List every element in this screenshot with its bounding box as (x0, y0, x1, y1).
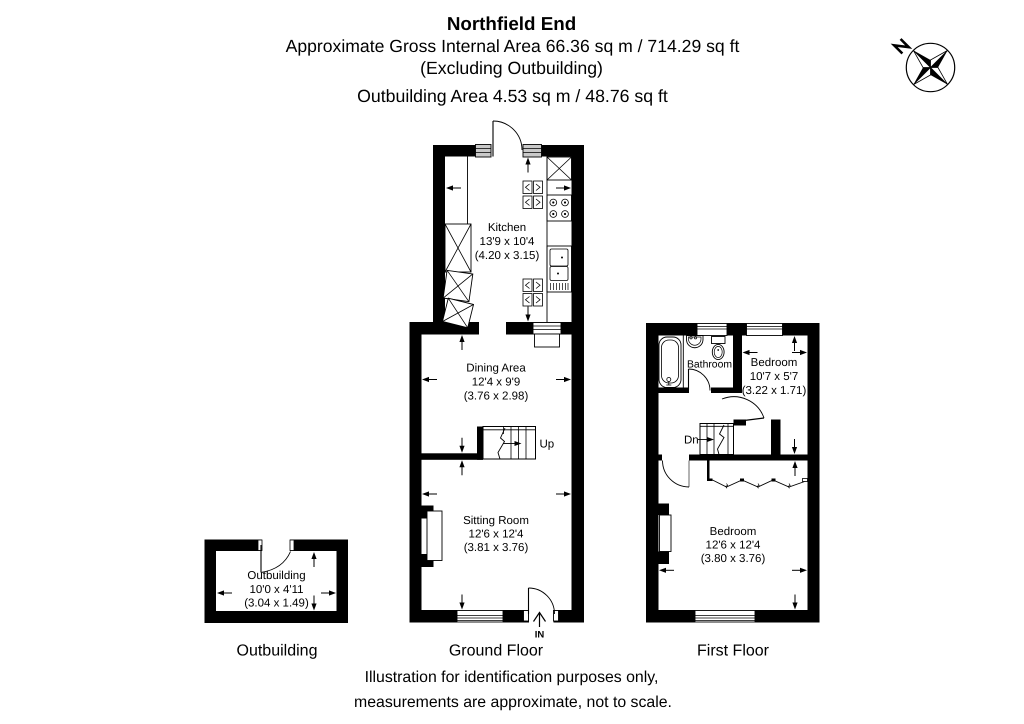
svg-text:Approximate Gross Internal Are: Approximate Gross Internal Area 66.36 sq… (286, 36, 740, 56)
svg-text:IN: IN (535, 630, 545, 641)
svg-text:Outbuilding Area 4.53 sq m / 4: Outbuilding Area 4.53 sq m / 48.76 sq ft (357, 86, 668, 106)
svg-text:12'4 x 9'9: 12'4 x 9'9 (472, 377, 521, 389)
svg-text:(3.04 x 1.49): (3.04 x 1.49) (244, 598, 309, 610)
svg-text:Bedroom: Bedroom (751, 357, 798, 369)
svg-text:Illustration for identificatio: Illustration for identification purposes… (365, 669, 659, 686)
svg-text:(Excluding Outbuilding): (Excluding Outbuilding) (420, 58, 603, 78)
svg-text:Ground Floor: Ground Floor (449, 643, 544, 660)
svg-text:Bedroom: Bedroom (710, 526, 757, 538)
svg-text:measurements are approximate,: measurements are approximate, not to sca… (354, 694, 672, 711)
svg-text:Dn: Dn (684, 435, 699, 447)
svg-text:(3.76 x 2.98): (3.76 x 2.98) (464, 391, 529, 403)
svg-text:(3.80 x 3.76): (3.80 x 3.76) (701, 553, 766, 565)
svg-text:(3.81 x 3.76): (3.81 x 3.76) (464, 542, 529, 554)
svg-text:10'7 x 5'7: 10'7 x 5'7 (750, 371, 799, 383)
svg-text:Outbuilding: Outbuilding (237, 643, 318, 660)
svg-text:13'9 x 10'4: 13'9 x 10'4 (480, 236, 536, 248)
svg-text:12'6 x 12'4: 12'6 x 12'4 (469, 529, 525, 541)
svg-text:Dining Area: Dining Area (466, 363, 526, 375)
svg-text:(4.20 x 3.15): (4.20 x 3.15) (475, 250, 540, 262)
svg-text:Up: Up (540, 439, 555, 451)
svg-text:12'6 x 12'4: 12'6 x 12'4 (706, 540, 762, 552)
svg-text:Bathroom: Bathroom (687, 360, 732, 371)
svg-text:10'0 x 4'11: 10'0 x 4'11 (249, 584, 303, 596)
svg-text:Sitting Room: Sitting Room (463, 515, 529, 527)
svg-text:Northfield End: Northfield End (447, 13, 576, 34)
svg-text:First Floor: First Floor (697, 643, 770, 660)
svg-text:(3.22 x 1.71): (3.22 x 1.71) (742, 385, 807, 397)
svg-text:Outbuilding: Outbuilding (247, 570, 305, 582)
svg-text:Kitchen: Kitchen (488, 222, 526, 234)
